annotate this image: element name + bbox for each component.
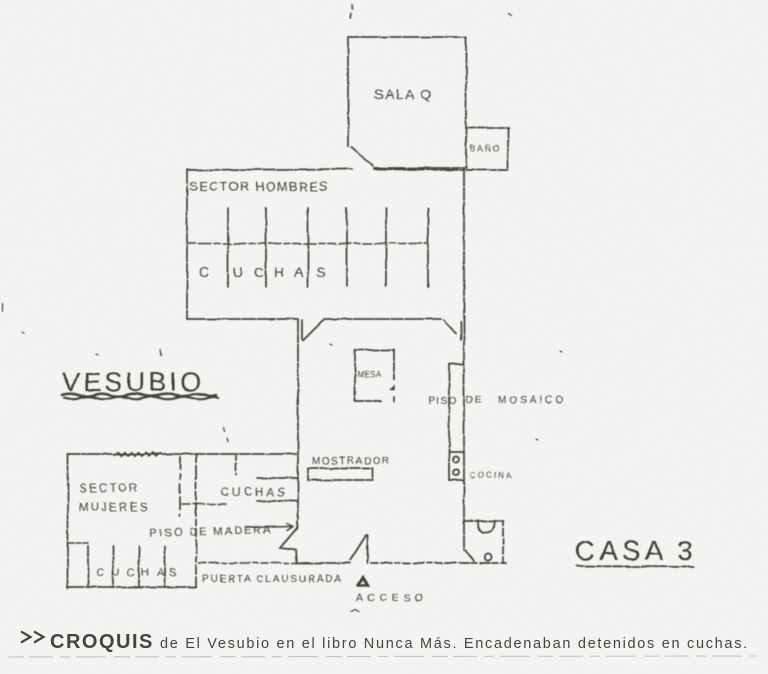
svg-text:COCINA: COCINA [470,471,513,480]
svg-text:PUERTA CLAUSURADA: PUERTA CLAUSURADA [202,574,343,585]
svg-text:C: C [254,264,264,280]
svg-text:U: U [112,567,120,579]
svg-text:U: U [233,264,243,280]
svg-text:C: C [199,264,209,280]
svg-text:CASA 3: CASA 3 [575,535,697,566]
svg-text:H: H [274,264,284,280]
svg-text:SECTOR HOMBRES: SECTOR HOMBRES [189,179,329,194]
svg-text:MOSTRADOR: MOSTRADOR [312,456,391,467]
svg-text:CROQUIS: CROQUIS [50,631,154,653]
svg-text:ACCESO: ACCESO [356,592,427,604]
svg-text:H: H [141,567,149,579]
svg-text:CUCHAS: CUCHAS [221,487,288,499]
svg-text:BAÑO: BAÑO [470,143,501,153]
svg-text:MUJERES: MUJERES [79,502,149,514]
svg-text:S: S [316,264,325,280]
svg-text:MESA: MESA [357,370,382,379]
svg-text:A: A [157,567,165,579]
svg-text:C: C [96,567,104,579]
svg-text:de El Vesubio en el libro Nunc: de El Vesubio en el libro Nunca Más. Enc… [160,636,749,652]
svg-text:MOSAICO: MOSAICO [498,395,566,406]
svg-text:PISO: PISO [428,396,458,407]
svg-text:SALA Q: SALA Q [374,86,433,102]
svg-text:C: C [127,567,135,579]
svg-text:SECTOR: SECTOR [79,483,140,495]
svg-text:DE: DE [466,395,483,406]
svg-text:A: A [294,264,304,280]
svg-text:S: S [169,567,176,579]
